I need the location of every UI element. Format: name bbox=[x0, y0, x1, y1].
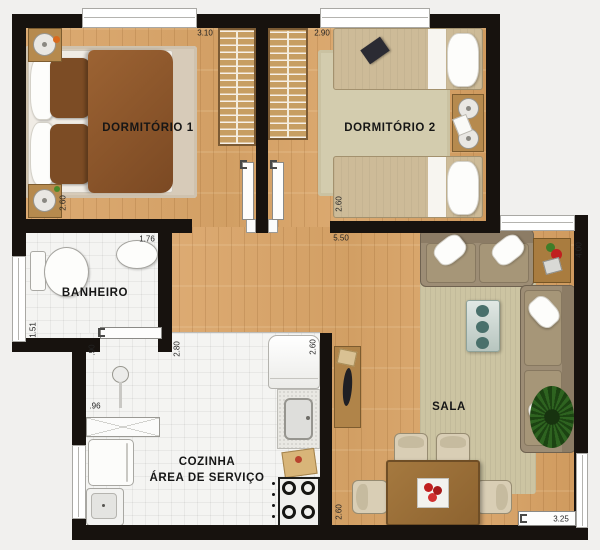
stove-burner-4 bbox=[301, 505, 315, 519]
label-kitchen: COZINHA bbox=[179, 456, 236, 468]
wall-between-bedrooms bbox=[256, 27, 268, 233]
dorm1-lamp-bottom-icon bbox=[33, 189, 56, 212]
bathroom-sink-icon bbox=[116, 240, 158, 269]
label-dorm2: DORMITÓRIO 2 bbox=[344, 122, 436, 134]
window-sala-right bbox=[576, 453, 588, 528]
dorm2-bed-bottom-pillow bbox=[447, 161, 479, 215]
stove-burner-1 bbox=[282, 481, 296, 495]
doorframe-dorm1 bbox=[246, 219, 256, 233]
fridge-divider bbox=[270, 378, 318, 379]
dorm1-decor-green-icon bbox=[54, 186, 60, 192]
wall-sala-top bbox=[330, 221, 500, 233]
washing-machine-door-line bbox=[126, 443, 128, 482]
window-dorm2 bbox=[320, 8, 430, 28]
label-bathroom: BANHEIRO bbox=[62, 287, 128, 299]
exterior-top-right bbox=[500, 0, 600, 215]
dorm1-pillow-brown-top bbox=[50, 58, 90, 118]
cutting-board-icon bbox=[281, 448, 317, 478]
dining-chair-left bbox=[352, 480, 388, 514]
door-bathroom bbox=[100, 327, 162, 339]
label-service: ÁREA DE SERVIÇO bbox=[149, 472, 264, 484]
shower-head-icon bbox=[112, 366, 129, 383]
wall-kitchen-sala bbox=[320, 333, 332, 527]
door-dorm1 bbox=[242, 162, 254, 220]
dim-dorm1-width: 3.10 bbox=[197, 29, 213, 38]
dorm2-bed-top-sheet bbox=[428, 29, 446, 89]
sliding-door-handle-icon bbox=[520, 514, 527, 523]
exterior-bottom-left bbox=[0, 352, 72, 550]
kitchen-faucet-icon bbox=[306, 416, 310, 420]
dim-slider-width: 3.25 bbox=[553, 515, 569, 524]
wall-top-center bbox=[197, 14, 320, 28]
stove-burner-2 bbox=[301, 481, 315, 495]
door-dorm2 bbox=[272, 162, 284, 220]
window-dorm1 bbox=[82, 8, 197, 28]
dim-kitchen-left: 2.80 bbox=[173, 341, 182, 357]
window-bathroom bbox=[12, 256, 26, 342]
dorm2-bed-top-pillow bbox=[447, 33, 479, 87]
wall-dorm2-right bbox=[486, 14, 500, 233]
cutting-board-item bbox=[295, 456, 302, 463]
plant-icon bbox=[530, 386, 574, 448]
shower-rod-icon bbox=[119, 382, 122, 408]
stove-knobs bbox=[272, 482, 275, 485]
dim-shower-depth: .96 bbox=[89, 402, 100, 411]
dim-shower-width: .90 bbox=[88, 344, 97, 355]
laundry-tank-drain bbox=[102, 504, 105, 507]
dim-bathroom-width: 1.76 bbox=[139, 235, 155, 244]
doorframe-dorm2 bbox=[268, 219, 278, 233]
dim-dorm2-width: 2.90 bbox=[314, 29, 330, 38]
apples-icon bbox=[424, 483, 433, 492]
dorm1-decor-orange-icon bbox=[53, 36, 60, 43]
dim-dorm1-depth: 2.60 bbox=[59, 195, 68, 211]
door-dorm2-handle-icon bbox=[270, 160, 277, 169]
dim-dorm2-depth: 2.60 bbox=[335, 196, 344, 212]
dim-living-depth: 4.00 bbox=[575, 242, 584, 258]
dim-kitchen-right: 2.60 bbox=[309, 339, 318, 355]
dining-chair-right bbox=[476, 480, 512, 514]
dim-dining-depth: 2.60 bbox=[335, 504, 344, 520]
door-dorm1-handle-icon bbox=[240, 160, 247, 169]
stove-burner-3 bbox=[282, 505, 296, 519]
door-bathroom-handle-icon bbox=[98, 328, 105, 337]
wall-bottom bbox=[72, 525, 588, 540]
window-service bbox=[72, 445, 86, 519]
dim-living-width: 5.50 bbox=[333, 234, 349, 243]
dorm1-pillow-brown-bottom bbox=[50, 124, 90, 184]
label-sala: SALA bbox=[432, 401, 466, 413]
dim-bathroom-depth: 1.51 bbox=[29, 322, 38, 338]
label-dorm1: DORMITÓRIO 1 bbox=[102, 122, 194, 134]
dining-centerpiece bbox=[417, 478, 449, 508]
service-cabinet bbox=[86, 417, 160, 437]
coffee-table-decor-icon bbox=[476, 305, 489, 317]
floor-plan: DORMITÓRIO 1 DORMITÓRIO 2 BANHEIRO COZIN… bbox=[0, 0, 600, 550]
dorm1-lamp-top-icon bbox=[33, 33, 56, 56]
window-sala-top bbox=[500, 215, 575, 231]
dorm2-wardrobe bbox=[268, 28, 308, 140]
kitchen-threshold bbox=[172, 332, 320, 333]
dorm1-wardrobe bbox=[218, 28, 256, 146]
dorm2-bed-bottom-sheet bbox=[428, 157, 446, 217]
